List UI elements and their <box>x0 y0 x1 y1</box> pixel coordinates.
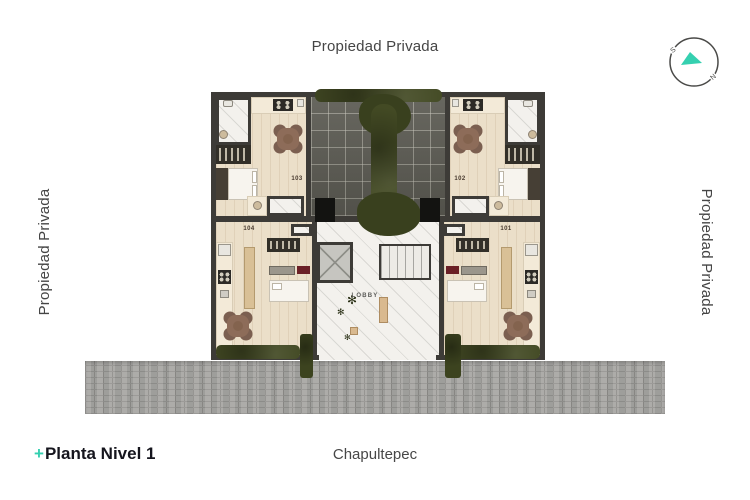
bathroom <box>444 224 465 236</box>
floor-plan: ✻ ✻ ✻ 103 102 104 101 LOBBY <box>211 92 545 360</box>
label-propiedad-privada-top: Propiedad Privada <box>0 38 750 55</box>
street-pavement <box>85 361 665 414</box>
compass-south-label: S <box>669 46 677 55</box>
lobby-bench <box>379 297 388 323</box>
bed-headboard <box>216 168 228 200</box>
kitchen-island <box>501 247 512 309</box>
compass-icon: S N <box>664 32 724 92</box>
shower <box>267 196 304 216</box>
pillow <box>499 171 504 183</box>
pillow <box>272 283 282 290</box>
dining-table <box>221 309 255 343</box>
terrace-door-left <box>315 198 335 222</box>
plant-icon: ✻ <box>344 334 351 342</box>
bed-headboard <box>528 168 540 200</box>
tv-icon <box>446 266 459 274</box>
sink-icon <box>253 201 262 210</box>
label-propiedad-privada-right: Propiedad Privada <box>697 172 715 332</box>
lobby-label: LOBBY <box>347 293 383 299</box>
kitchen-island <box>244 247 255 309</box>
label-propiedad-privada-left: Propiedad Privada <box>36 172 54 332</box>
wall-terrace-left <box>306 92 311 222</box>
stairs <box>379 244 431 280</box>
sink-icon <box>494 201 503 210</box>
toilet-icon <box>523 100 533 107</box>
compass-needle-icon <box>681 52 702 65</box>
dining-table <box>451 122 485 156</box>
fridge-icon <box>218 244 231 256</box>
entrance-planter-right <box>445 334 461 378</box>
closet <box>505 145 540 164</box>
stove-icon <box>463 99 483 111</box>
closet <box>267 238 300 252</box>
entrance-planter-left <box>300 334 313 378</box>
toilet-icon <box>223 100 233 107</box>
unit-label-102: 102 <box>448 176 472 182</box>
terrace-door-right <box>420 198 440 222</box>
tv-icon <box>297 266 310 274</box>
stove-icon <box>273 99 293 111</box>
tv-console <box>461 266 487 275</box>
unit-label-101: 101 <box>494 226 518 232</box>
kitchen-appliance <box>297 99 304 107</box>
stove-icon <box>525 270 538 284</box>
unit-label-103: 103 <box>285 176 309 182</box>
fridge-icon <box>525 244 538 256</box>
page: Propiedad Privada Propiedad Privada Prop… <box>0 0 750 500</box>
elevator <box>317 242 353 283</box>
closet <box>216 145 251 164</box>
unit-label-104: 104 <box>237 226 261 232</box>
sink-icon <box>220 290 229 298</box>
hedge-terrace-bottom <box>357 192 421 236</box>
compass-north-label: N <box>709 73 717 82</box>
lobby-stool <box>350 327 358 335</box>
kitchen-appliance <box>452 99 459 107</box>
sink-icon <box>528 130 537 139</box>
closet <box>456 238 489 252</box>
tv-console <box>269 266 295 275</box>
wall-right <box>540 92 545 360</box>
shower <box>452 196 489 216</box>
pillow <box>252 171 257 183</box>
wall-lobby-right <box>439 222 444 360</box>
sink-icon <box>219 130 228 139</box>
street-name-label: Chapultepec <box>0 446 750 463</box>
sink-icon <box>527 290 536 298</box>
stove-icon <box>218 270 231 284</box>
bathroom <box>291 224 312 236</box>
dining-table <box>501 309 535 343</box>
pillow <box>474 283 484 290</box>
dining-table <box>271 122 305 156</box>
hedge-facade-left <box>216 345 300 359</box>
hedge-facade-right <box>456 345 540 359</box>
plant-icon: ✻ <box>337 308 345 317</box>
